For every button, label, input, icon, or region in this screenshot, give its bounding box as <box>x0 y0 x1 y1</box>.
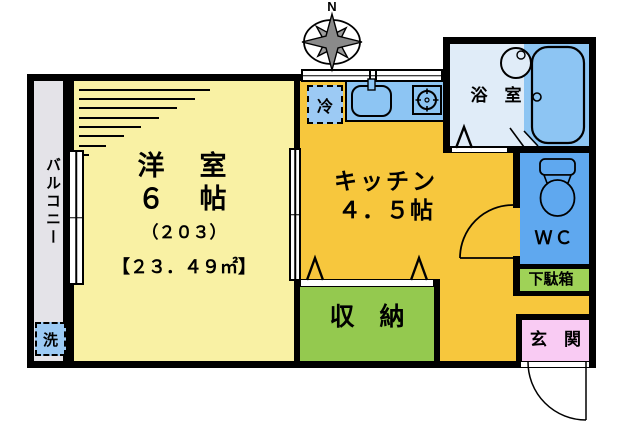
living-room-unit-no: （２０３） <box>74 224 294 241</box>
wc-label: ＷＣ <box>520 229 589 247</box>
sink-faucet <box>368 79 375 90</box>
kitchen-size: ４．５帖 <box>306 199 466 222</box>
living-room-area: 【２３．４９㎡】 <box>74 258 294 276</box>
wc-door-swing <box>460 205 513 258</box>
storage-label: 収 納 <box>300 305 434 330</box>
storage-folding-door-right <box>411 258 427 280</box>
toilet-tank <box>540 159 575 175</box>
storage-folding-door-left <box>307 258 323 280</box>
entrance-door-swing <box>528 362 586 420</box>
living-room-name: 洋 室 <box>74 153 294 180</box>
bathroom-folding-door <box>456 127 472 148</box>
compass-rose <box>302 12 362 71</box>
entrance-label: 玄 関 <box>522 331 589 348</box>
living-room-size: ６ 帖 <box>74 186 294 213</box>
stove-burner-center <box>425 98 429 102</box>
stove-burner-ticks <box>416 89 439 112</box>
toilet-bowl <box>541 180 575 216</box>
floor-plan: 冷 洗 <box>0 0 640 441</box>
balcony-label-vertical: バルコニー <box>38 132 60 272</box>
wash-basin <box>501 48 531 78</box>
compass-north-label: N <box>320 0 344 13</box>
shoe-cabinet-label: 下駄箱 <box>513 272 589 287</box>
bathroom-label: 浴 室 <box>450 87 542 104</box>
kitchen-name: キッチン <box>306 170 466 193</box>
